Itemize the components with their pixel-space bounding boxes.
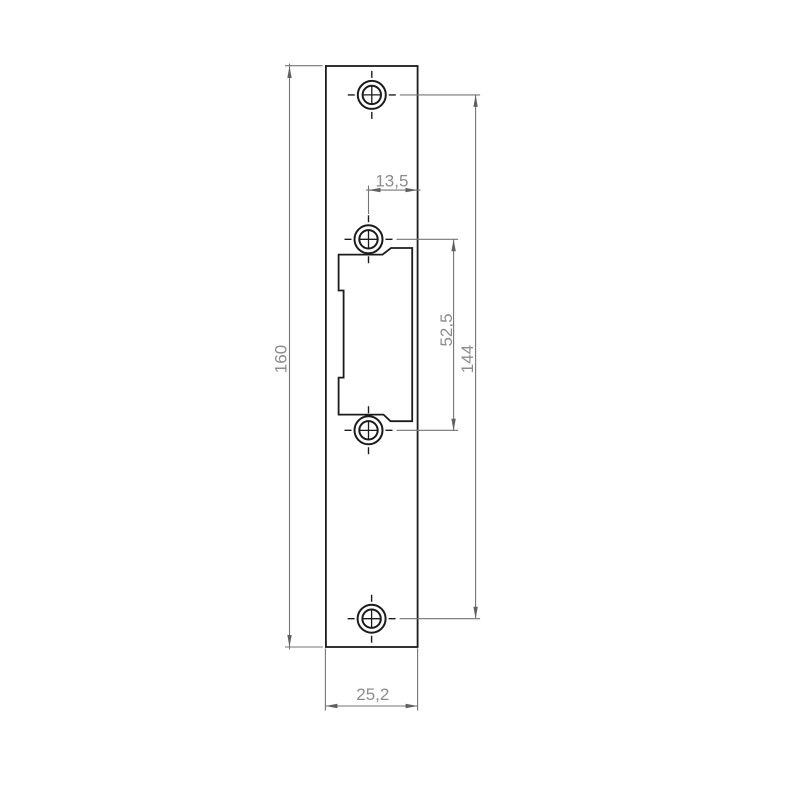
svg-text:25,2: 25,2 [356, 685, 389, 704]
svg-text:144: 144 [458, 345, 477, 373]
svg-text:52,5: 52,5 [437, 313, 456, 346]
svg-text:13,5: 13,5 [375, 172, 408, 191]
svg-text:160: 160 [271, 345, 290, 373]
